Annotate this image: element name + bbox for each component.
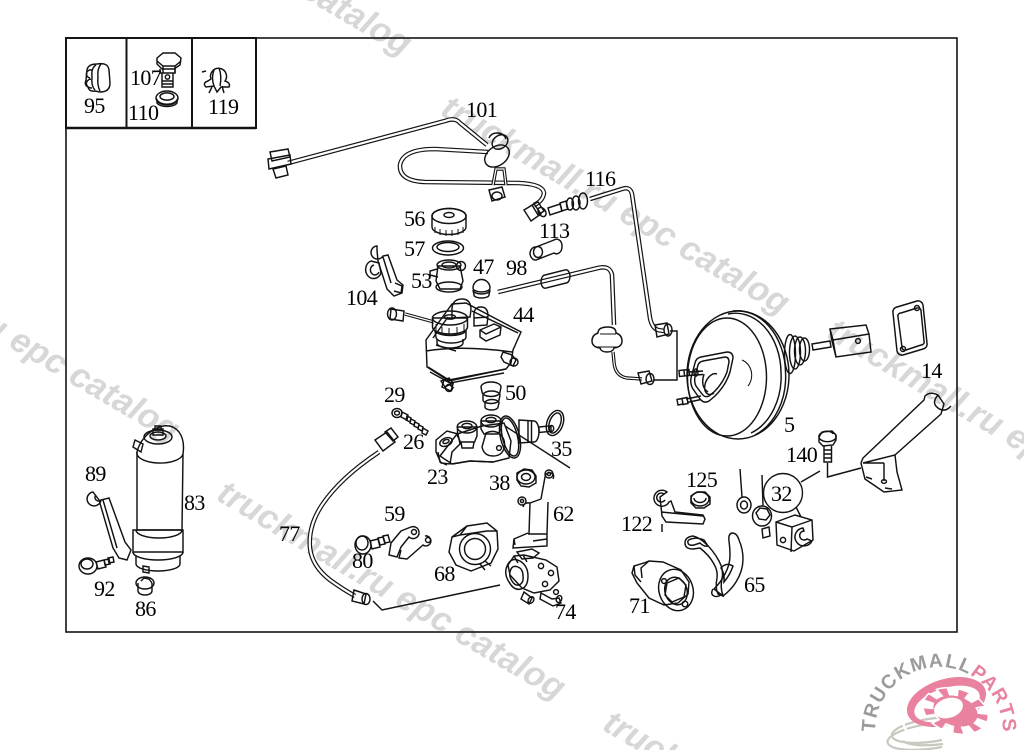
svg-text:107: 107 <box>130 65 162 90</box>
svg-text:35: 35 <box>551 436 572 461</box>
svg-text:125: 125 <box>686 467 718 492</box>
svg-text:95: 95 <box>84 93 105 118</box>
svg-text:32: 32 <box>771 481 792 506</box>
svg-text:101: 101 <box>466 97 497 122</box>
svg-text:71: 71 <box>629 593 650 618</box>
svg-text:38: 38 <box>489 470 510 495</box>
svg-text:122: 122 <box>621 511 652 536</box>
svg-text:92: 92 <box>94 576 115 601</box>
svg-text:110: 110 <box>128 100 159 125</box>
svg-text:77: 77 <box>279 521 300 546</box>
svg-text:65: 65 <box>744 572 765 597</box>
svg-text:56: 56 <box>404 206 425 231</box>
svg-text:53: 53 <box>411 268 432 293</box>
svg-text:44: 44 <box>513 302 534 327</box>
svg-text:104: 104 <box>346 285 378 310</box>
svg-text:23: 23 <box>427 464 448 489</box>
svg-text:113: 113 <box>539 218 570 243</box>
svg-text:86: 86 <box>135 596 156 621</box>
svg-text:62: 62 <box>553 501 574 526</box>
svg-text:50: 50 <box>505 380 526 405</box>
svg-text:116: 116 <box>585 166 616 191</box>
svg-text:47: 47 <box>473 254 494 279</box>
svg-text:59: 59 <box>384 501 405 526</box>
svg-text:98: 98 <box>506 255 527 280</box>
svg-text:80: 80 <box>352 548 373 573</box>
svg-text:119: 119 <box>208 94 239 119</box>
svg-text:140: 140 <box>786 442 818 467</box>
svg-text:5: 5 <box>784 412 795 437</box>
svg-text:83: 83 <box>184 490 205 515</box>
svg-text:26: 26 <box>403 429 424 454</box>
svg-text:29: 29 <box>384 382 405 407</box>
svg-text:14: 14 <box>921 358 942 383</box>
svg-text:74: 74 <box>555 599 576 624</box>
svg-text:68: 68 <box>434 561 455 586</box>
svg-text:89: 89 <box>85 461 106 486</box>
svg-text:57: 57 <box>404 236 425 261</box>
